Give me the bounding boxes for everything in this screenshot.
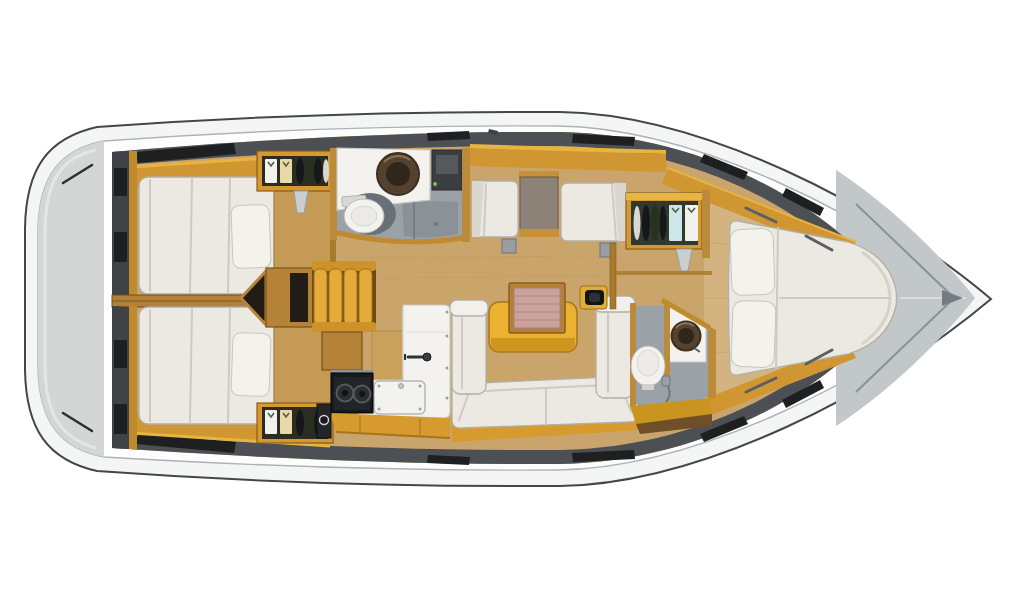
bulkhead-post <box>330 240 336 262</box>
sink-cover-screw <box>419 408 422 411</box>
burner-center <box>359 391 365 397</box>
toilet-lid <box>351 206 377 226</box>
head-wall-left <box>330 148 337 240</box>
steps-cap-bottom <box>312 322 376 332</box>
hull-strip-hatch <box>114 168 127 196</box>
table-front-face <box>491 338 575 351</box>
counter-screw <box>446 397 449 400</box>
burner-center <box>342 390 348 396</box>
hanging-clothes <box>296 410 304 436</box>
hanging-clothes <box>305 158 313 184</box>
step-locker <box>322 332 362 370</box>
hanging-clothes <box>634 206 641 240</box>
salon-bulkhead <box>610 243 616 309</box>
counter-screw <box>446 311 449 314</box>
step-slat <box>359 269 372 325</box>
port-head <box>330 148 470 243</box>
stern-bulkhead-trim <box>129 306 137 449</box>
seat-pedestal <box>502 239 516 253</box>
toilet-hinge <box>642 384 654 390</box>
head-wall-right <box>708 326 716 398</box>
lower-counter-wood <box>372 331 403 381</box>
shirt <box>280 159 292 183</box>
shirt <box>669 205 682 241</box>
faucet-base <box>423 353 431 361</box>
hanging-clothes <box>642 205 650 241</box>
settee-right-arm <box>596 302 633 398</box>
hanging-clothes <box>323 159 329 183</box>
stern-bulkhead-trim <box>129 151 137 296</box>
locker-gauge <box>320 416 329 425</box>
cabinet-device-inner <box>589 293 600 302</box>
shower-floor <box>402 200 458 238</box>
hanging-clothes <box>296 158 304 184</box>
pillow <box>731 300 776 367</box>
floor-plan-svg <box>0 0 1024 600</box>
sink-cover-screw <box>378 385 381 388</box>
shirt <box>265 159 277 183</box>
step-slat <box>329 269 342 325</box>
yacht-floor-plan-image <box>0 0 1024 600</box>
shower-drain <box>434 222 438 226</box>
stern-swim-platform <box>38 141 104 457</box>
head-wall-right <box>462 148 470 242</box>
table-leaf <box>514 288 560 328</box>
chart-table <box>520 177 558 231</box>
sink-cover-screw <box>419 385 422 388</box>
pillow <box>231 332 271 396</box>
flush-pump <box>662 376 670 386</box>
hull-strip-hatch <box>114 340 127 368</box>
counter-screw <box>446 367 449 370</box>
hanging-clothes <box>660 206 667 240</box>
medicine-locker-inner <box>436 155 458 174</box>
toilet-lid <box>637 350 659 376</box>
washbasin-inner <box>386 162 410 186</box>
sink-cover-handle <box>399 384 404 389</box>
hanging-wardrobe-port-aft <box>257 151 333 191</box>
settee-left-arm <box>452 306 486 394</box>
counter-screw <box>446 335 449 338</box>
hanging-clothes <box>305 410 313 436</box>
head-mid-post <box>664 304 670 386</box>
hull-strip-hatch <box>114 404 127 434</box>
led-indicator <box>433 182 437 186</box>
shirt <box>280 410 292 434</box>
step-slat <box>314 269 327 325</box>
engine-box-interior <box>290 273 308 322</box>
pillow <box>730 228 775 295</box>
hanging-clothes <box>314 158 322 184</box>
shirt <box>265 410 277 434</box>
pillow <box>231 204 271 268</box>
step-slat <box>344 269 357 325</box>
washbasin-inner <box>678 328 694 344</box>
locker-side-wall <box>702 190 710 258</box>
locker-top-face <box>626 193 702 200</box>
settee-left-armrest <box>450 300 488 316</box>
passage-floor-trim <box>616 271 712 275</box>
chart-table-wood-bottom <box>519 229 559 237</box>
sink-cover-screw <box>378 408 381 411</box>
hull-strip-hatch <box>114 232 127 262</box>
hanging-clothes <box>651 205 659 241</box>
shirt <box>685 205 698 241</box>
